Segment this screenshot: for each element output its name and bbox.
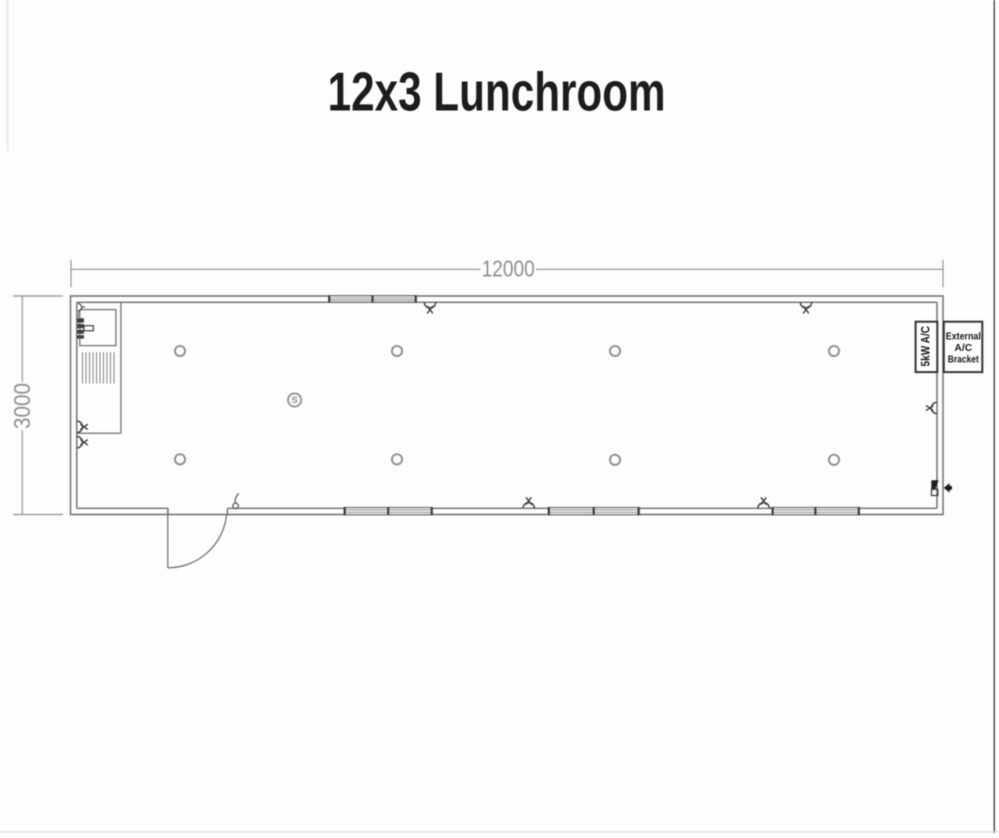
- svg-text:External: External: [946, 332, 981, 343]
- svg-text:S: S: [292, 395, 298, 406]
- svg-text:Bracket: Bracket: [948, 355, 979, 366]
- svg-text:A/C: A/C: [954, 343, 972, 354]
- svg-text:3000: 3000: [9, 383, 35, 429]
- svg-text:12000: 12000: [482, 255, 535, 281]
- svg-text:12x3 Lunchroom: 12x3 Lunchroom: [328, 60, 666, 122]
- svg-text:5kW A/C: 5kW A/C: [921, 326, 933, 367]
